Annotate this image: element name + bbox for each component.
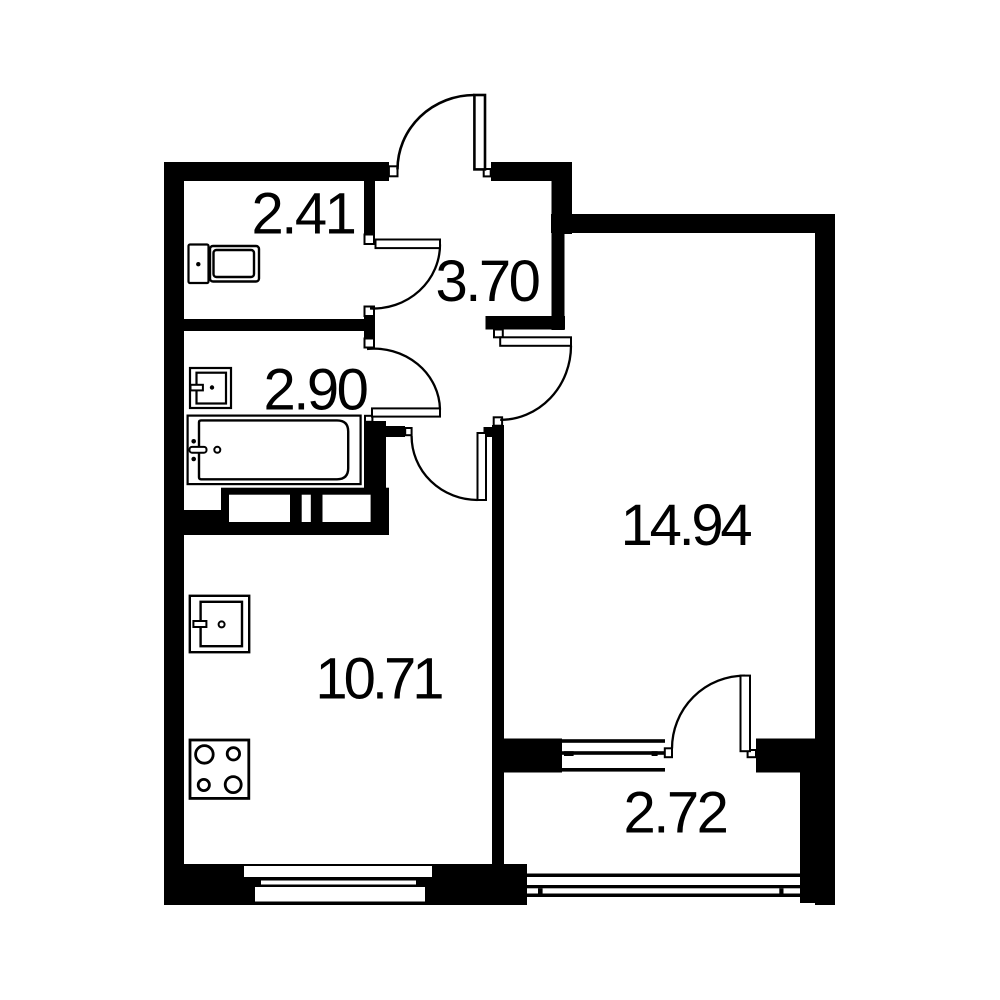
svg-text:2.41: 2.41 <box>252 181 355 246</box>
svg-text:2.72: 2.72 <box>624 780 727 845</box>
svg-text:2.90: 2.90 <box>264 357 367 422</box>
svg-text:10.71: 10.71 <box>315 647 442 712</box>
svg-text:14.94: 14.94 <box>621 493 752 558</box>
svg-text:3.70: 3.70 <box>436 249 539 314</box>
